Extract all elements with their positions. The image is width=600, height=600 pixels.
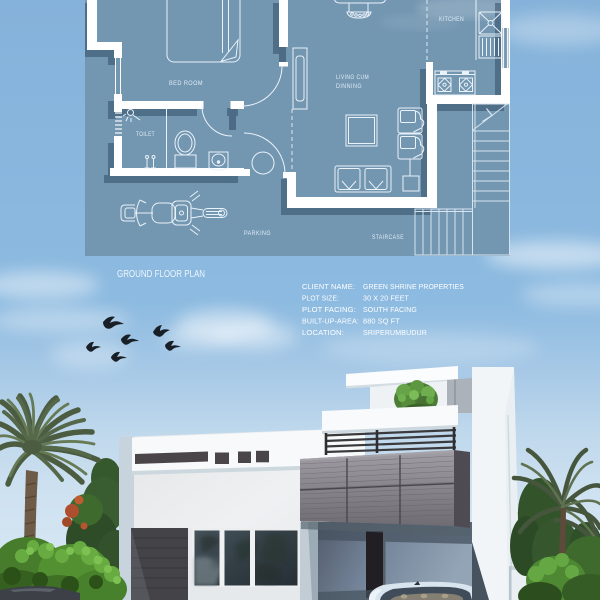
svg-text:DINNING: DINNING [336, 83, 362, 90]
svg-text:GREEN SHRINE PROPERTIES: GREEN SHRINE PROPERTIES [363, 282, 464, 291]
svg-text:PLOT SIZE:: PLOT SIZE: [302, 294, 339, 303]
svg-text:GROUND FLOOR PLAN: GROUND FLOOR PLAN [117, 269, 205, 280]
svg-text:STAIRCASE: STAIRCASE [372, 234, 404, 241]
svg-text:BED ROOM: BED ROOM [169, 80, 203, 87]
svg-text:LOCATION:: LOCATION: [302, 328, 344, 337]
svg-text:TOILET: TOILET [136, 131, 155, 138]
svg-text:LIVING CUM: LIVING CUM [336, 74, 369, 81]
svg-text:880 SQ FT: 880 SQ FT [363, 317, 400, 326]
svg-text:PARKING: PARKING [244, 230, 271, 237]
svg-text:PLOT FACING:: PLOT FACING: [302, 305, 356, 314]
svg-text:SOUTH FACING: SOUTH FACING [363, 305, 417, 314]
svg-text:KITCHEN: KITCHEN [439, 16, 464, 23]
svg-text:30 X 20 FEET: 30 X 20 FEET [363, 294, 409, 303]
svg-text:SRIPERUMBUDUR: SRIPERUMBUDUR [363, 328, 427, 337]
svg-text:BUILT-UP-AREA:: BUILT-UP-AREA: [302, 317, 359, 326]
svg-text:CLIENT NAME:: CLIENT NAME: [302, 282, 355, 291]
